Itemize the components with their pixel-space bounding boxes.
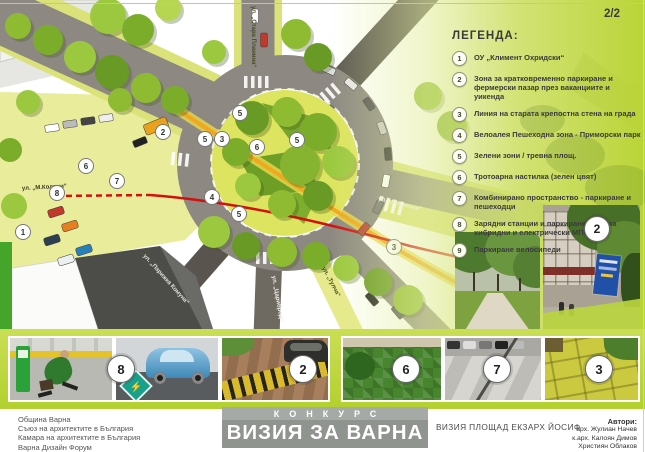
- bush: [345, 352, 375, 380]
- legend-item-text: ОУ „Климент Охридски“: [474, 51, 564, 66]
- map-marker: 5: [237, 210, 242, 219]
- map-marker: 3: [220, 135, 225, 144]
- photo-charging-kiosk: [8, 336, 114, 402]
- legend-item: 8Зарядни станции и паркиране само за хиб…: [452, 217, 642, 237]
- map-marker: 6: [255, 143, 260, 152]
- charging-station: [16, 346, 30, 392]
- legend-item-text: Линия на старата крепостна стена на град…: [474, 107, 636, 122]
- poster-frame-line: [0, 3, 645, 4]
- contest-title: ВИЗИЯ ЗА ВАРНА: [222, 420, 428, 448]
- legend-item-text: Зарядни станции и паркиране само за хибр…: [474, 217, 642, 237]
- legend-item-text: Комбинирано пространство - паркиране и п…: [474, 191, 642, 211]
- authors-block: Автори: арх. Жулиан Начев к.арх. Калоян …: [572, 418, 637, 452]
- map-marker: 2: [161, 128, 166, 137]
- green-edge-strip: [0, 242, 12, 335]
- legend-item-number: 5: [452, 149, 467, 164]
- photo-badge: 3: [585, 355, 613, 383]
- legend-item-number: 4: [452, 128, 467, 143]
- author: Християн Облаков: [572, 443, 637, 451]
- legend-item: 5Зелени зони / тревна площ.: [452, 149, 642, 164]
- legend: ЛЕГЕНДА: 1ОУ „Климент Охридски“ 2Зона за…: [452, 30, 642, 264]
- dark-corner: [545, 338, 563, 352]
- awning: [543, 267, 595, 275]
- man-leg: [38, 390, 53, 397]
- photo-badge: 6: [392, 355, 420, 383]
- legend-item: 9Паркиране велосипеди: [452, 243, 642, 258]
- legend-item-number: 7: [452, 191, 467, 206]
- legend-item-text: Зелени зони / тревна площ.: [474, 149, 576, 164]
- legend-item: 4Велоалея Пешеходна зона - Приморски пар…: [452, 128, 642, 143]
- map-marker: 6: [84, 162, 89, 171]
- poster: ул. „Стара Планина“ ул. „М.Колони“ ул. „…: [0, 0, 645, 452]
- street-label: ул. „Стара Планина“: [250, 6, 256, 67]
- legend-item-number: 8: [452, 217, 467, 232]
- legend-item-number: 6: [452, 170, 467, 185]
- briefcase: [39, 379, 54, 391]
- photo-badge: 2: [584, 216, 610, 242]
- contest-block: КОНКУРС ВИЗИЯ ЗА ВАРНА: [222, 407, 428, 448]
- ev-car-glass: [160, 350, 194, 362]
- page-number: 2/2: [604, 8, 620, 20]
- man-leg: [62, 381, 78, 390]
- wheel: [192, 372, 204, 384]
- path-strip: [343, 338, 441, 347]
- legend-item: 6Тротоарна настилка (зелен цвят): [452, 170, 642, 185]
- parked-cars-row: [445, 338, 543, 356]
- ev-plug-glyph: ⚡: [130, 381, 143, 393]
- map-marker: 7: [115, 177, 120, 186]
- legend-title: ЛЕГЕНДА:: [452, 30, 642, 42]
- legend-item-number: 3: [452, 107, 467, 122]
- author: к.арх. Калоян Димов: [572, 435, 637, 443]
- contest-label: КОНКУРС: [222, 407, 428, 420]
- map-marker: 8: [55, 189, 60, 198]
- legend-item: 7Комбинирано пространство - паркиране и …: [452, 191, 642, 211]
- project-title: ВИЗИЯ ПЛОЩАД ЕКЗАРХ ЙОСИФ: [436, 422, 581, 432]
- legend-item: 1ОУ „Климент Охридски“: [452, 51, 642, 66]
- wheel: [154, 372, 166, 384]
- grass-corner: [222, 338, 254, 356]
- legend-item-text: Паркиране велосипеди: [474, 243, 561, 258]
- photo-badge: 7: [483, 355, 511, 383]
- map-marker: 4: [210, 193, 215, 202]
- green-overlay: [543, 297, 640, 333]
- legend-item: 3Линия на старата крепостна стена на гра…: [452, 107, 642, 122]
- organizer: Варна Дизайн Форум: [18, 443, 140, 452]
- organizers-list: Община Варна Съюз на архитектите в Бълга…: [18, 415, 140, 452]
- legend-item-text: Велоалея Пешеходна зона - Приморски парк: [474, 128, 641, 143]
- legend-item-text: Тротоарна настилка (зелен цвят): [474, 170, 596, 185]
- legend-item-number: 2: [452, 72, 467, 87]
- legend-item-number: 1: [452, 51, 467, 66]
- legend-item: 2Зона за кратковременно паркиране и ферм…: [452, 72, 642, 101]
- legend-item-number: 9: [452, 243, 467, 258]
- authors-label: Автори:: [572, 418, 637, 426]
- map-marker: 5: [238, 109, 243, 118]
- footer: Община Варна Съюз на архитектите в Бълга…: [0, 409, 645, 452]
- map-marker: 5: [295, 136, 300, 145]
- poster-frame-line: [643, 0, 644, 452]
- map-marker: 1: [21, 228, 26, 237]
- photo-badge: 8: [107, 355, 135, 383]
- organizer: Съюз на архитектите в България: [18, 424, 140, 433]
- organizer: Камара на архитектите в България: [18, 433, 140, 442]
- legend-item-text: Зона за кратковременно паркиране и ферме…: [474, 72, 642, 101]
- author: арх. Жулиан Начев: [572, 426, 637, 434]
- map-marker: 5: [203, 135, 208, 144]
- organizer: Община Варна: [18, 415, 140, 424]
- photo-badge: 2: [289, 355, 317, 383]
